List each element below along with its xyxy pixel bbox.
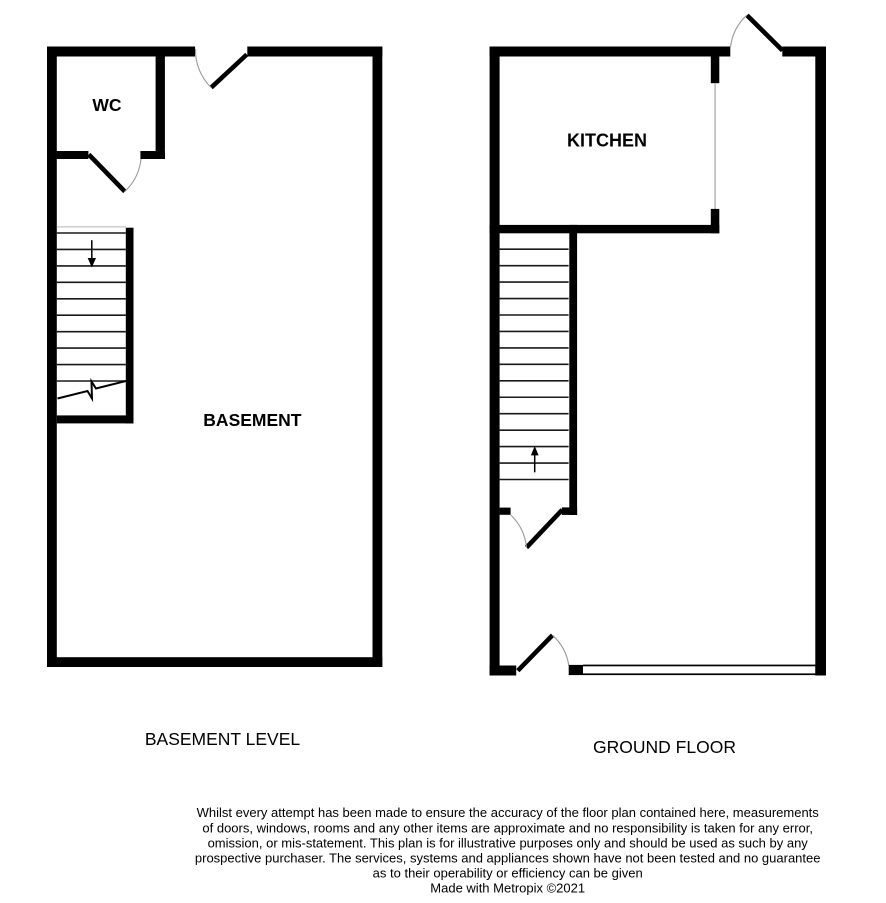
svg-text:BASEMENT LEVEL: BASEMENT LEVEL <box>145 729 301 749</box>
svg-text:omission, or mis-statement. Th: omission, or mis-statement. This plan is… <box>208 835 809 850</box>
svg-text:Whilst every attempt has been: Whilst every attempt has been made to en… <box>197 805 820 820</box>
svg-text:as to their operability or eff: as to their operability or efficiency ca… <box>373 866 643 881</box>
svg-text:BASEMENT: BASEMENT <box>203 410 302 430</box>
svg-text:Made with Metropix ©2021: Made with Metropix ©2021 <box>430 881 585 896</box>
svg-text:of doors, windows, rooms and a: of doors, windows, rooms and any other i… <box>202 820 813 835</box>
svg-text:prospective purchaser. The ser: prospective purchaser. The services, sys… <box>195 851 821 866</box>
svg-text:KITCHEN: KITCHEN <box>567 131 647 151</box>
svg-text:GROUND FLOOR: GROUND FLOOR <box>593 737 736 757</box>
svg-text:WC: WC <box>92 95 122 115</box>
